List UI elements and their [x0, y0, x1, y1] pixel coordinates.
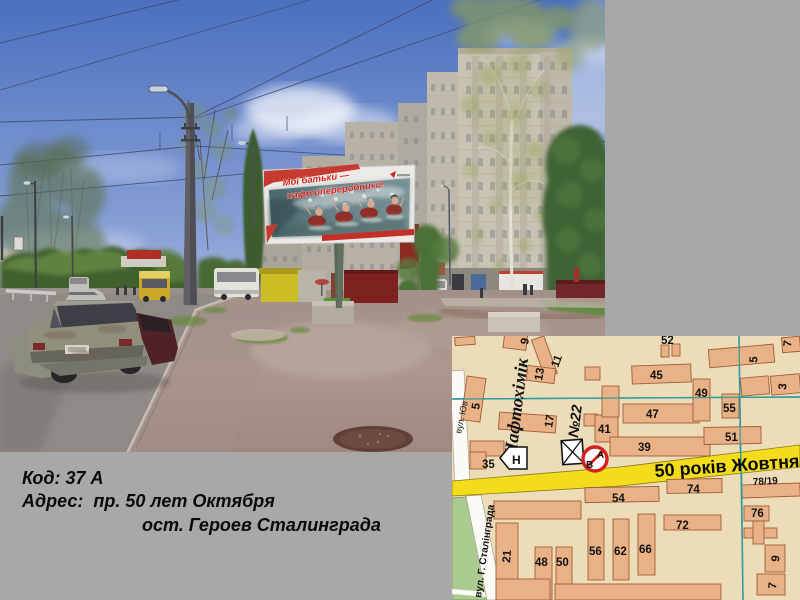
svg-text:Адрес: пр. 50 лет Октября: Адрес: пр. 50 лет Октября — [21, 491, 275, 511]
svg-text:35: 35 — [482, 459, 495, 471]
svg-text:3: 3 — [777, 383, 790, 390]
svg-text:51: 51 — [725, 432, 738, 444]
svg-text:7: 7 — [767, 582, 780, 589]
svg-text:Н: Н — [512, 453, 521, 467]
svg-text:72: 72 — [676, 520, 689, 532]
svg-text:66: 66 — [639, 544, 652, 556]
svg-text:45: 45 — [650, 370, 663, 382]
svg-text:21: 21 — [501, 549, 514, 563]
svg-text:50: 50 — [556, 557, 569, 569]
svg-text:74: 74 — [687, 484, 700, 496]
svg-text:Код: 37 А: Код: 37 А — [22, 468, 104, 488]
svg-text:54: 54 — [612, 493, 625, 505]
svg-text:49: 49 — [695, 388, 708, 400]
svg-text:В: В — [586, 460, 593, 471]
svg-text:39: 39 — [638, 442, 651, 454]
svg-text:41: 41 — [598, 424, 611, 436]
svg-text:9: 9 — [770, 555, 783, 562]
svg-text:А: А — [597, 450, 604, 461]
svg-text:52: 52 — [661, 335, 674, 347]
svg-text:48: 48 — [535, 557, 548, 569]
svg-text:56: 56 — [589, 546, 602, 558]
svg-text:17: 17 — [543, 414, 557, 429]
svg-text:7: 7 — [782, 340, 795, 347]
svg-text:13: 13 — [533, 367, 547, 382]
svg-text:78/19: 78/19 — [753, 476, 779, 488]
svg-text:76: 76 — [751, 508, 764, 520]
svg-text:47: 47 — [646, 409, 659, 421]
svg-text:62: 62 — [614, 546, 627, 558]
svg-text:55: 55 — [723, 403, 736, 415]
svg-text:ост. Героев Сталинграда: ост. Героев Сталинграда — [142, 515, 381, 535]
